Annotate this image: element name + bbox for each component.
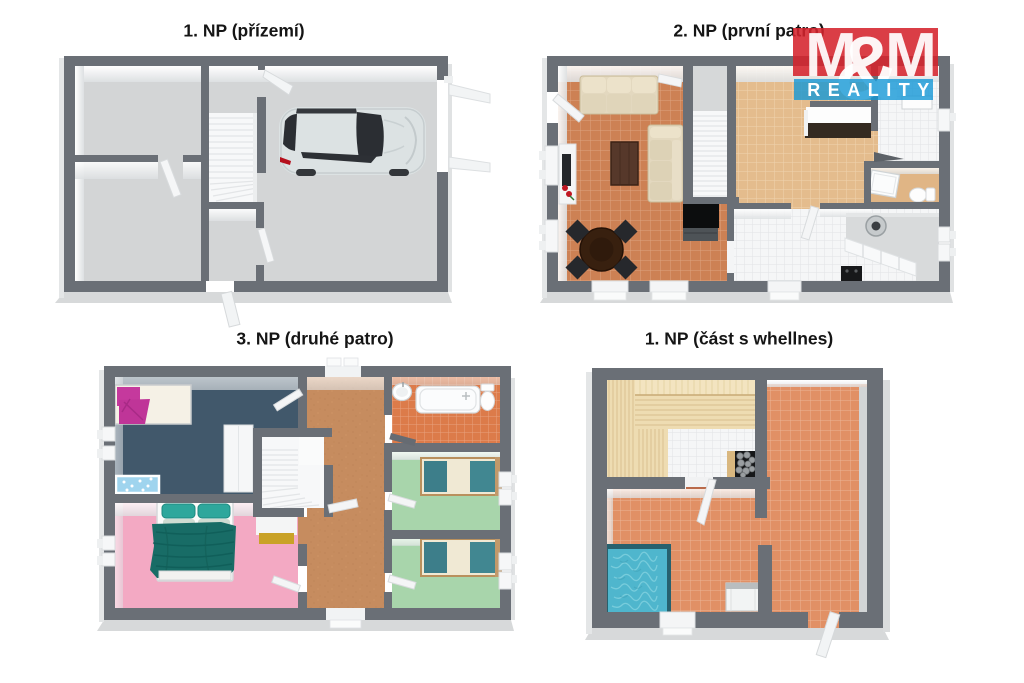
svg-text:1. NP (část s whellnes): 1. NP (část s whellnes) — [645, 329, 833, 349]
svg-text:&: & — [835, 19, 900, 119]
svg-text:1. NP (přízemí): 1. NP (přízemí) — [183, 21, 304, 41]
svg-text:3. NP (druhé patro): 3. NP (druhé patro) — [236, 329, 393, 349]
svg-text:REALITY: REALITY — [807, 80, 937, 100]
